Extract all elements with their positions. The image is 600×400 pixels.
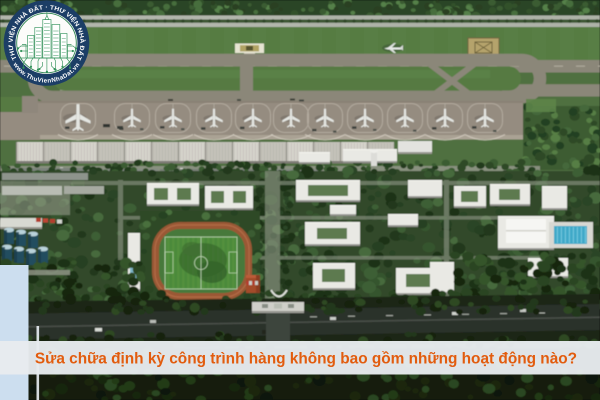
svg-text:Sửa chữa định kỳ công trình hà: Sửa chữa định kỳ công trình hàng không b… (35, 351, 577, 368)
